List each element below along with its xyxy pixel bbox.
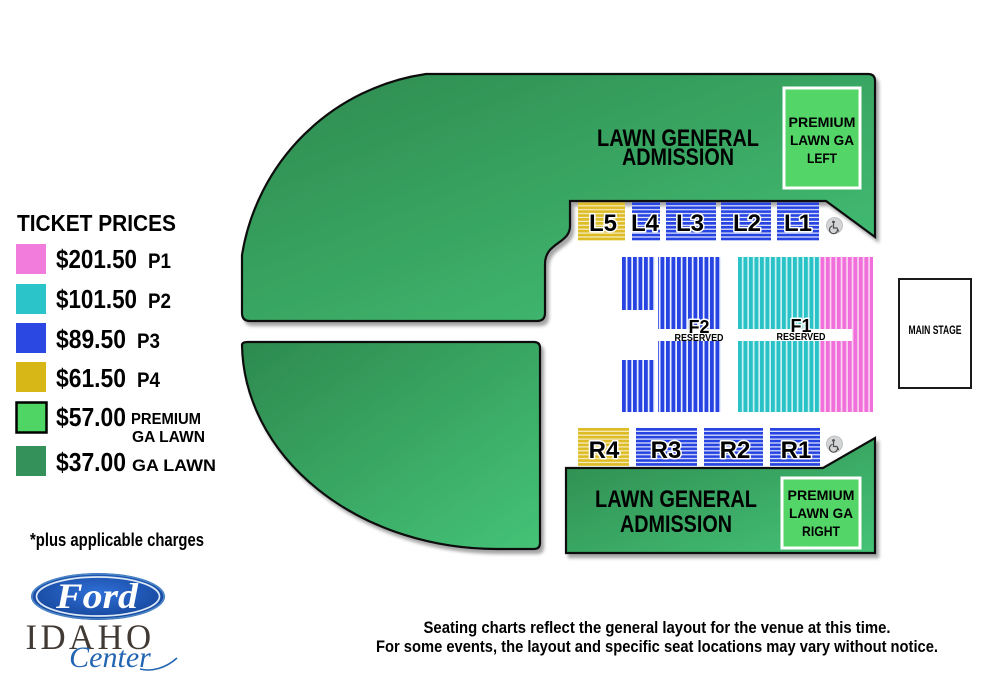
svg-text:RESERVED: RESERVED xyxy=(675,332,724,344)
svg-text:PREMIUM: PREMIUM xyxy=(789,114,856,130)
svg-text:L2: L2 xyxy=(733,210,761,237)
svg-text:*plus applicable charges: *plus applicable charges xyxy=(30,530,204,550)
svg-text:For some events, the layout an: For some events, the layout and specific… xyxy=(376,637,938,656)
svg-text:MAIN STAGE: MAIN STAGE xyxy=(909,323,962,337)
svg-text:GA LAWN: GA LAWN xyxy=(132,429,205,446)
svg-text:LAWN GENERAL: LAWN GENERAL xyxy=(595,486,757,513)
svg-text:ADMISSION: ADMISSION xyxy=(620,511,732,538)
svg-text:LAWN GA: LAWN GA xyxy=(790,132,854,148)
svg-text:LEFT: LEFT xyxy=(807,150,837,166)
svg-text:ADMISSION: ADMISSION xyxy=(622,144,734,171)
svg-text:P1: P1 xyxy=(148,250,171,273)
svg-text:Center: Center xyxy=(69,641,151,674)
svg-text:$57.00: $57.00 xyxy=(56,402,126,432)
svg-text:L1: L1 xyxy=(784,210,812,237)
svg-text:PREMIUM: PREMIUM xyxy=(131,411,201,428)
svg-text:P4: P4 xyxy=(137,369,160,392)
svg-text:R2: R2 xyxy=(720,437,751,464)
svg-text:L5: L5 xyxy=(589,210,617,237)
svg-text:TICKET PRICES: TICKET PRICES xyxy=(17,210,176,236)
svg-text:Seating charts reflect the gen: Seating charts reflect the general layou… xyxy=(424,618,891,637)
svg-text:GA LAWN: GA LAWN xyxy=(132,456,216,475)
svg-text:R1: R1 xyxy=(781,437,812,464)
svg-text:R3: R3 xyxy=(651,437,682,464)
svg-text:RIGHT: RIGHT xyxy=(802,523,840,539)
svg-text:PREMIUM: PREMIUM xyxy=(788,487,855,503)
svg-text:$61.50: $61.50 xyxy=(56,363,126,393)
svg-text:LAWN GA: LAWN GA xyxy=(789,505,853,521)
svg-text:$89.50: $89.50 xyxy=(56,324,126,354)
svg-text:P2: P2 xyxy=(148,290,171,313)
svg-text:$37.00: $37.00 xyxy=(56,447,126,477)
svg-text:R4: R4 xyxy=(589,437,620,464)
svg-text:$101.50: $101.50 xyxy=(56,284,137,314)
svg-text:L4: L4 xyxy=(631,210,660,237)
svg-text:L3: L3 xyxy=(676,210,704,237)
svg-text:$201.50: $201.50 xyxy=(56,244,137,274)
svg-text:RESERVED: RESERVED xyxy=(777,331,826,343)
svg-text:P3: P3 xyxy=(137,330,160,353)
svg-text:Ford: Ford xyxy=(55,576,139,616)
